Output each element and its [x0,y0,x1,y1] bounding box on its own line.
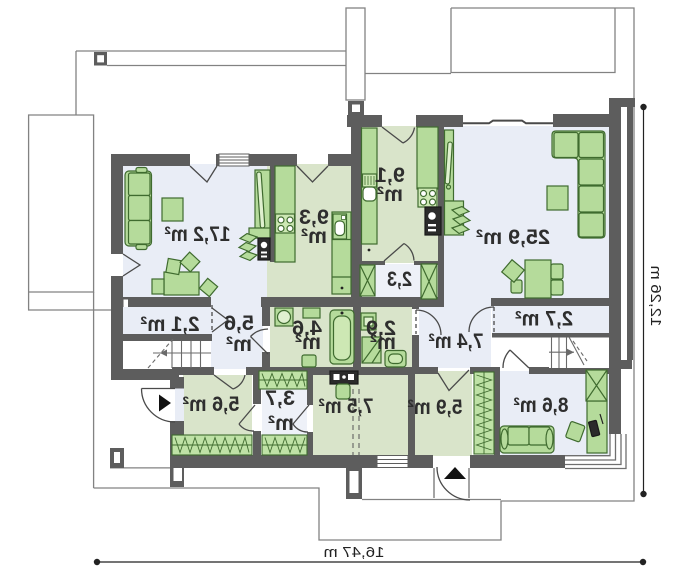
svg-text:5,6: 5,6 [224,312,254,335]
svg-text:m²: m² [377,183,403,206]
svg-text:7,4 m²: 7,4 m² [429,330,484,353]
svg-text:m²: m² [226,333,252,356]
svg-text:2,7 m²: 2,7 m² [515,308,573,331]
svg-text:3,7: 3,7 [265,387,295,410]
svg-text:m²: m² [301,225,327,248]
svg-text:8,6 m²: 8,6 m² [514,394,569,417]
svg-text:12,26 m: 12,26 m [647,266,664,327]
svg-text:7,5 m²: 7,5 m² [319,395,374,418]
svg-text:5,9 m²: 5,9 m² [408,396,463,419]
svg-text:m²: m² [268,412,294,435]
svg-text:m²: m² [295,331,321,354]
svg-text:17,2 m²: 17,2 m² [164,223,230,246]
svg-text:m²: m² [370,331,396,354]
svg-text:16,47 m: 16,47 m [324,544,385,561]
svg-text:25,9 m²: 25,9 m² [476,226,550,249]
svg-text:2,3: 2,3 [387,268,412,291]
svg-text:2,1 m²: 2,1 m² [141,313,200,336]
svg-text:5,6 m²: 5,6 m² [183,393,240,416]
